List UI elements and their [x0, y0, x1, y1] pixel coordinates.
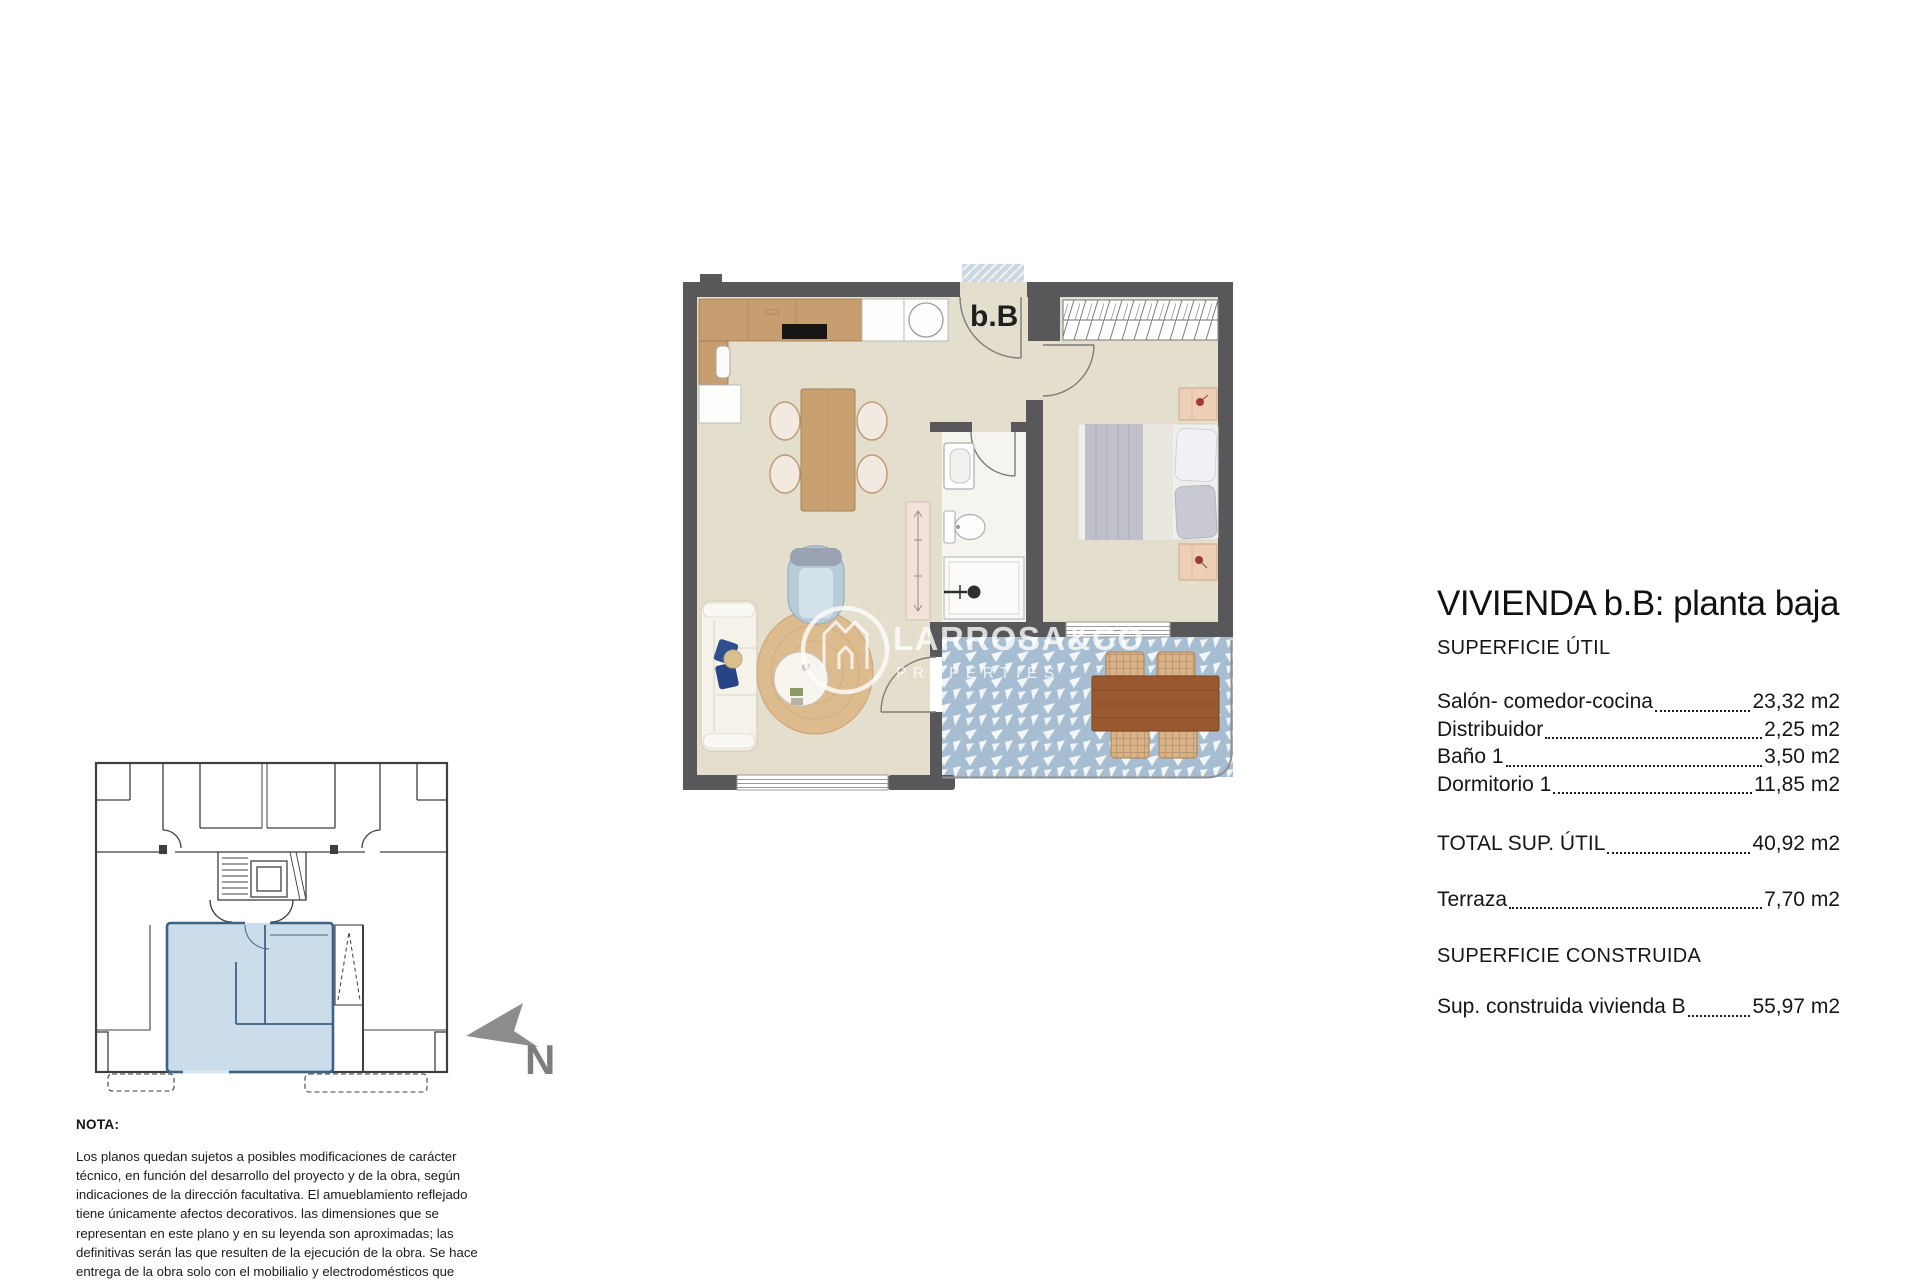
area-label: Distribuidor — [1437, 718, 1543, 742]
north-label: N — [525, 1036, 555, 1083]
total-label: TOTAL SUP. ÚTIL — [1437, 832, 1605, 856]
total-row: TOTAL SUP. ÚTIL 40,92 m2 — [1437, 832, 1840, 860]
note-heading: NOTA: — [76, 1117, 497, 1132]
highlighted-unit — [167, 923, 333, 1072]
kitchen-sink — [716, 346, 730, 378]
dotted-leader — [1545, 737, 1762, 739]
area-label: Baño 1 — [1437, 745, 1504, 769]
note-block: NOTA: Los planos quedan sujetos a posibl… — [76, 1117, 497, 1280]
dotted-leader — [1553, 792, 1752, 794]
dotted-leader — [1509, 907, 1762, 909]
area-row-distribuidor: Distribuidor 2,25 m2 — [1437, 718, 1840, 746]
section-superficie-util: SUPERFICIE ÚTIL — [1437, 637, 1840, 660]
area-value: 11,85 m2 — [1754, 773, 1840, 797]
area-table: Salón- comedor-cocina 23,32 m2 Distribui… — [1437, 690, 1840, 800]
area-value: 23,32 m2 — [1752, 690, 1840, 714]
main-floor-plan: b.B LARROSA&CO PROPERTIES — [683, 264, 1233, 790]
unit-label: b.B — [970, 300, 1018, 333]
dotted-leader — [1607, 852, 1750, 854]
section-superficie-construida: SUPERFICIE CONSTRUIDA — [1437, 945, 1840, 968]
note-body: Los planos quedan sujetos a posibles mod… — [76, 1147, 497, 1280]
area-summary: VIVIENDA b.B: planta baja SUPERFICIE ÚTI… — [1437, 584, 1840, 1023]
shower — [944, 557, 1024, 619]
brand-subtitle: PROPERTIES — [896, 665, 1061, 682]
dotted-leader — [1506, 765, 1763, 767]
cooktop — [782, 324, 827, 339]
area-row-dormitorio: Dormitorio 1 11,85 m2 — [1437, 773, 1840, 801]
stair-core — [218, 852, 306, 900]
area-value: 3,50 m2 — [1764, 745, 1840, 769]
area-row-bano: Baño 1 3,50 m2 — [1437, 745, 1840, 773]
total-value: 40,92 m2 — [1752, 832, 1840, 856]
area-value: 2,25 m2 — [1764, 718, 1840, 742]
plan-title: VIVIENDA b.B: planta baja — [1437, 584, 1840, 624]
doormat — [962, 264, 1024, 282]
dotted-leader — [1655, 710, 1751, 712]
brand-name: LARROSA&CO — [893, 620, 1145, 657]
area-label: Dormitorio 1 — [1437, 773, 1551, 797]
built-value: 55,97 m2 — [1752, 995, 1840, 1019]
terrace-value: 7,70 m2 — [1764, 888, 1840, 912]
area-label: Salón- comedor-cocina — [1437, 690, 1653, 714]
north-arrow: N — [466, 1003, 555, 1083]
dotted-leader — [1688, 1015, 1751, 1017]
terrace-row: Terraza 7,70 m2 — [1437, 888, 1840, 916]
coffee-table — [774, 652, 828, 706]
key-plan — [96, 763, 447, 1092]
area-row-salon: Salón- comedor-cocina 23,32 m2 — [1437, 690, 1840, 718]
built-row: Sup. construida vivienda B 55,97 m2 — [1437, 995, 1840, 1023]
brochure-page: b.B LARROSA&CO PROPERTIES — [0, 0, 1920, 1280]
built-label: Sup. construida vivienda B — [1437, 995, 1686, 1019]
terrace-label: Terraza — [1437, 888, 1507, 912]
